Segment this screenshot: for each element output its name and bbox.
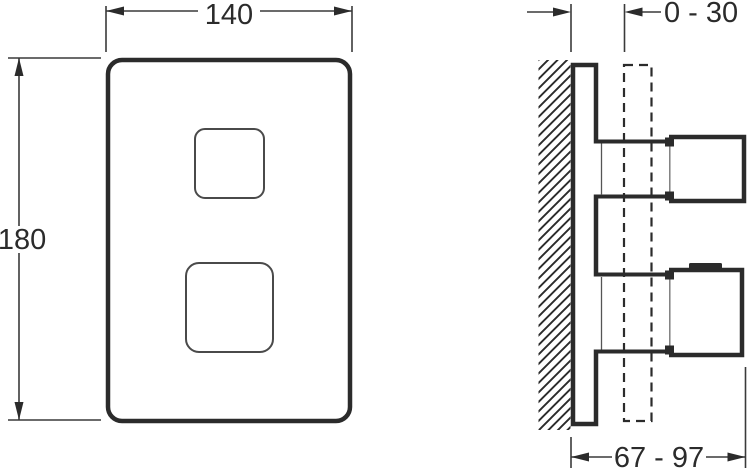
plate-offset-dimension-label: 0 - 30	[664, 0, 738, 29]
technical-drawing-page: 140 180	[0, 0, 750, 470]
lower-handle-outline	[669, 270, 742, 355]
plate-alternate-position-dashed	[624, 65, 652, 421]
arrowhead-left-icon	[106, 7, 124, 16]
upper-handle-top-joint	[665, 138, 674, 147]
arrowhead-right-icon	[334, 7, 352, 16]
side-view: 0 - 30 67 - 97	[527, 0, 746, 470]
front-plate	[108, 60, 350, 421]
lower-handle-top-joint	[665, 271, 674, 280]
plate-side-profile	[573, 65, 596, 424]
arrowhead-left-icon	[571, 453, 589, 462]
width-dimension: 140	[106, 0, 352, 52]
arrowhead-right-icon	[553, 8, 571, 17]
height-dimension: 180	[0, 58, 101, 420]
upper-handle-outline	[669, 137, 744, 201]
upper-handle-front	[195, 129, 264, 198]
arrowhead-up-icon	[15, 58, 24, 76]
arrowhead-down-icon	[15, 402, 24, 420]
upper-stem-body	[593, 144, 669, 195]
upper-handle-stem	[593, 142, 669, 197]
lower-stem-body	[593, 277, 669, 350]
lower-handle-bottom-joint	[665, 346, 674, 355]
height-dimension-label: 180	[0, 224, 46, 256]
plate-offset-dimension: 0 - 30	[527, 0, 738, 52]
arrowhead-right-icon	[728, 453, 746, 462]
lower-handle-side	[665, 263, 742, 355]
lower-handle-stem	[593, 275, 669, 352]
wall-hatching	[539, 60, 571, 430]
lower-handle-front	[186, 263, 273, 352]
front-view: 140 180	[0, 0, 352, 421]
handle-projection-dimension-label: 67 - 97	[614, 442, 704, 470]
technical-drawing-canvas: 140 180	[0, 0, 750, 470]
width-dimension-label: 140	[205, 0, 253, 31]
upper-handle-side	[665, 137, 744, 201]
arrowhead-left-icon	[625, 8, 643, 17]
lower-handle-top-tab	[689, 263, 722, 271]
upper-handle-bottom-joint	[665, 192, 674, 201]
